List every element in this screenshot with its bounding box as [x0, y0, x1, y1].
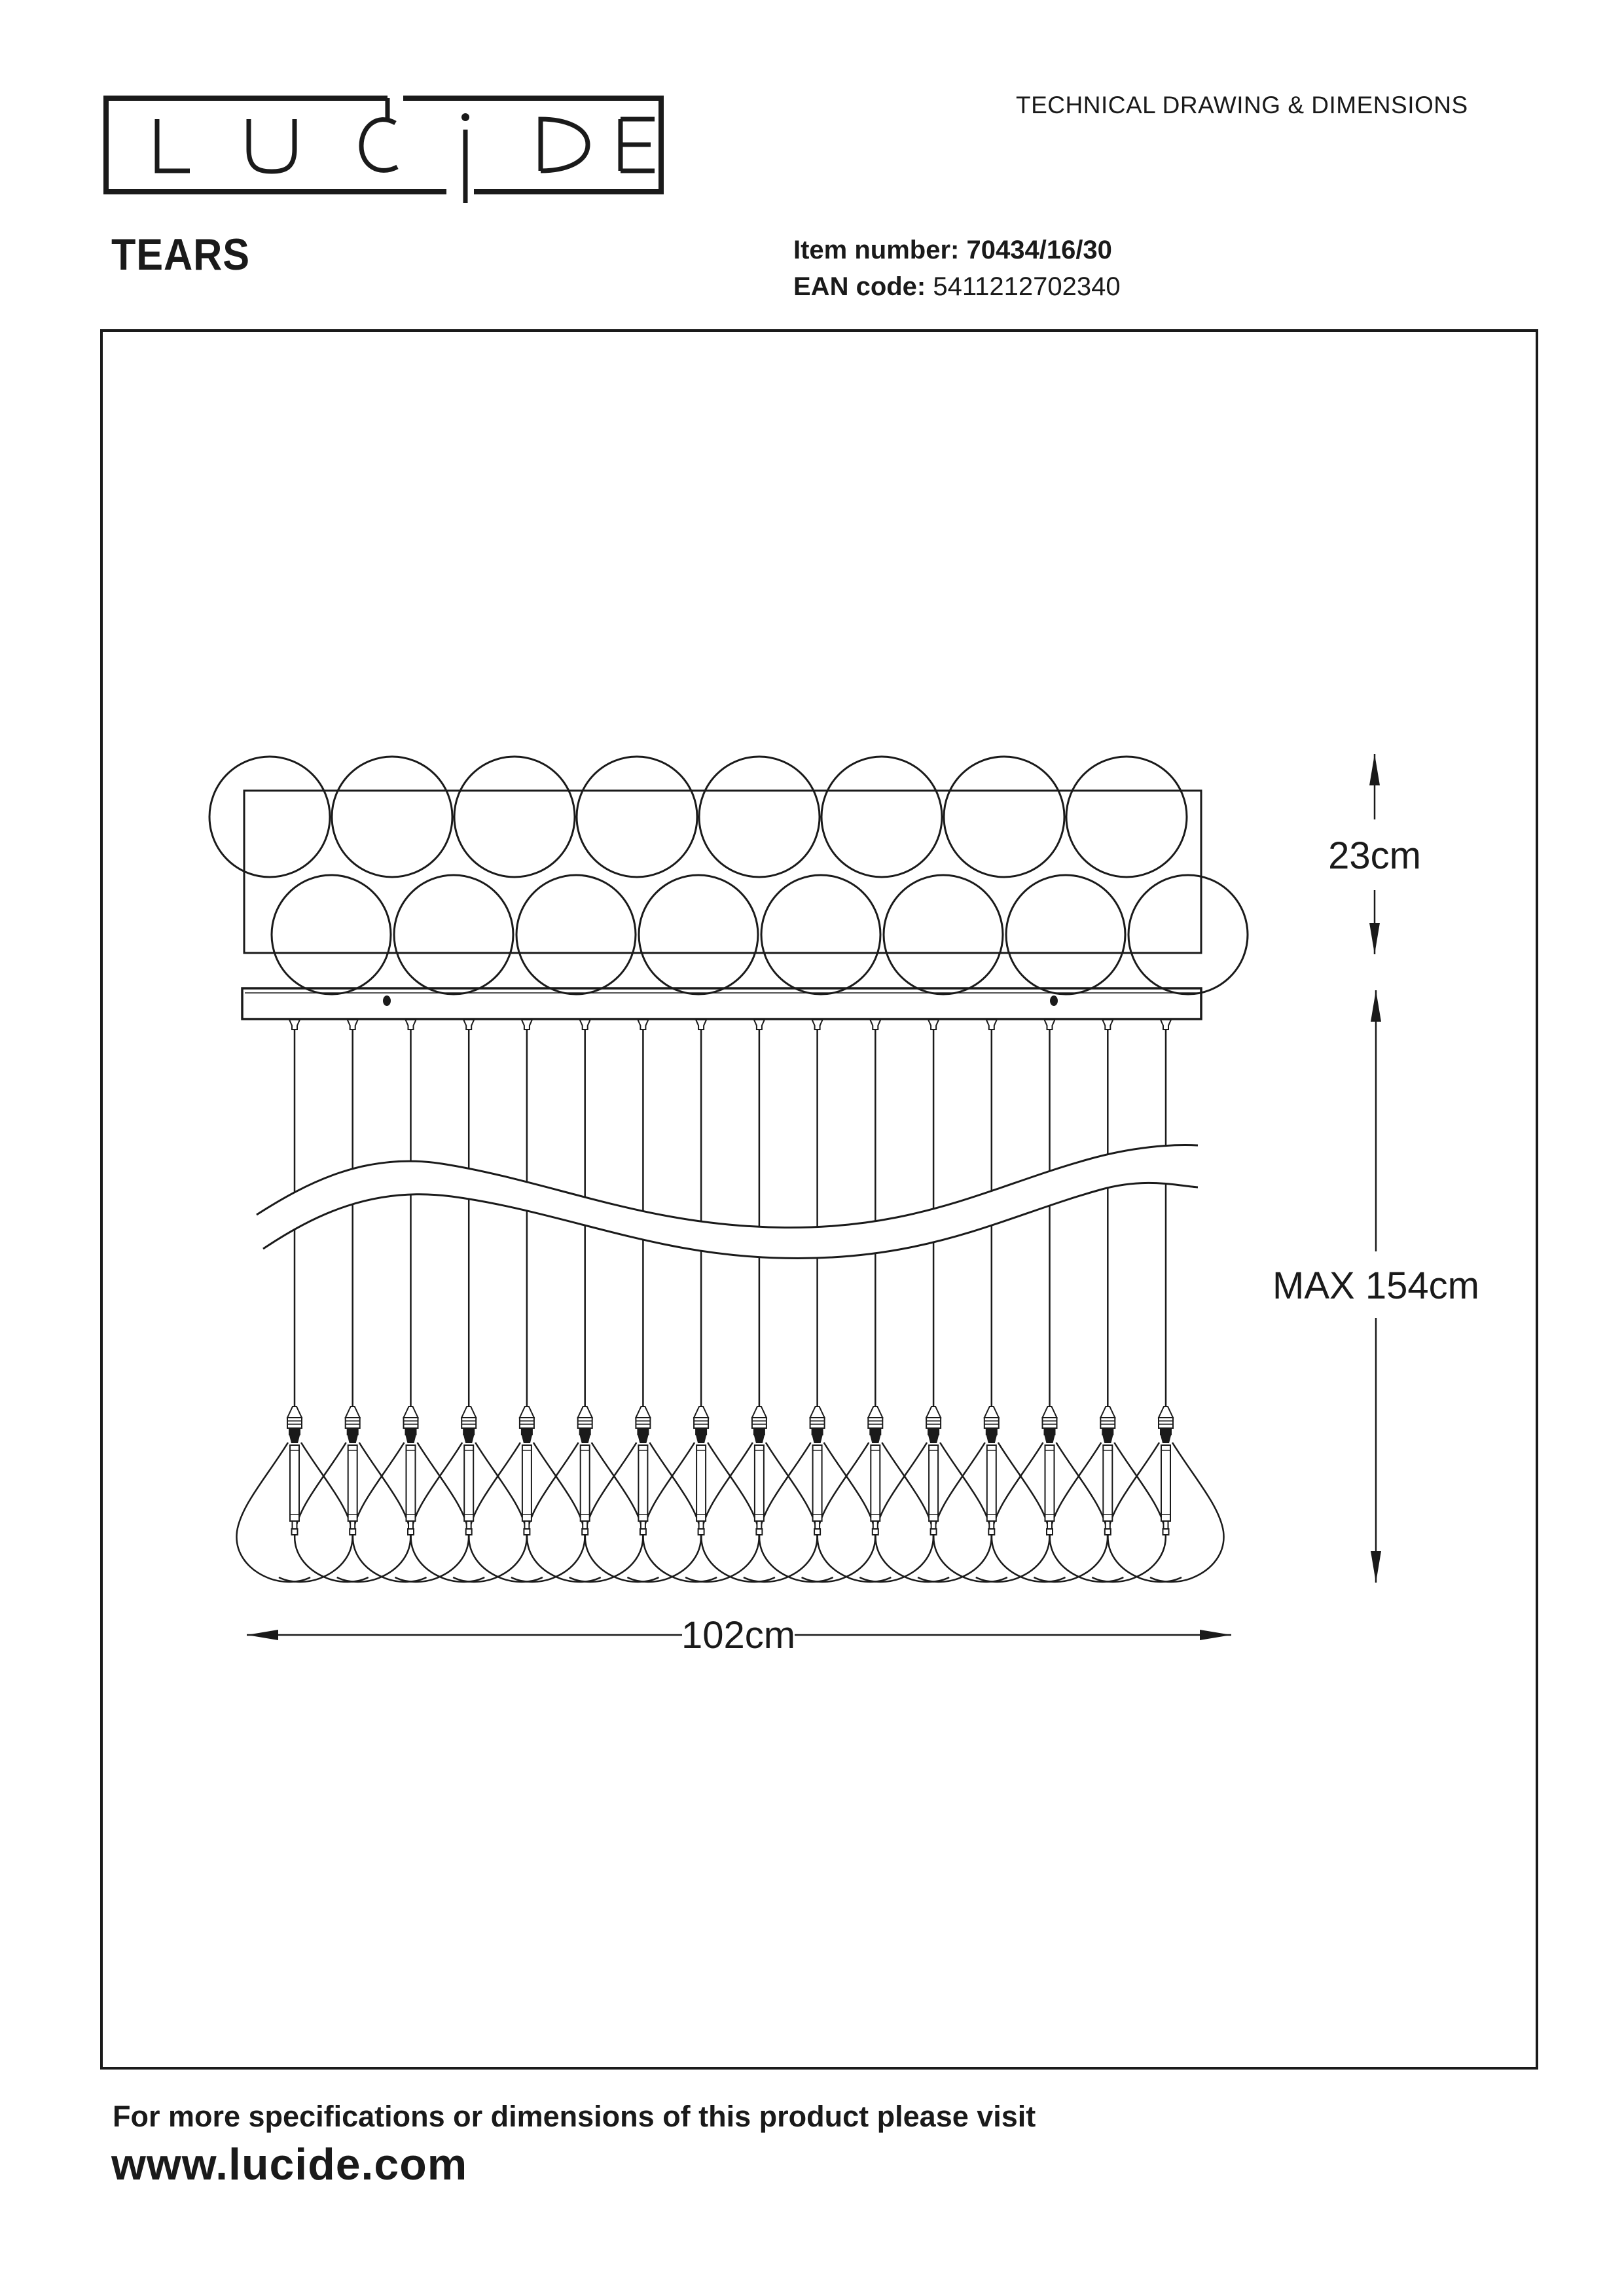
glass-circle [699, 757, 820, 877]
dimension-depth: 23cm [1328, 754, 1421, 954]
wire [348, 1020, 358, 1407]
top-view-plate [244, 791, 1201, 953]
length-break-wave [257, 1145, 1198, 1259]
socket-and-tube [984, 1407, 999, 1535]
glass-circle [209, 757, 330, 877]
glass-circles-top-row [209, 757, 1187, 877]
socket-and-tube [461, 1407, 476, 1535]
socket-and-tube [404, 1407, 418, 1535]
wire [406, 1020, 416, 1407]
glass-circle [1066, 757, 1187, 877]
socket-and-tube [1043, 1407, 1057, 1535]
dimension-depth-label: 23cm [1328, 834, 1421, 877]
glass-circle [577, 757, 697, 877]
socket-and-tube [1100, 1407, 1115, 1535]
glass-circle [1006, 875, 1125, 994]
wire [696, 1020, 706, 1407]
top-view [209, 757, 1248, 994]
wire [812, 1020, 823, 1407]
arrow-right-icon [1200, 1630, 1231, 1640]
socket-and-tube [346, 1407, 360, 1535]
footer-website: www.lucide.com [111, 2139, 467, 2190]
mounting-hole-right [1050, 996, 1058, 1006]
socket-and-tube [926, 1407, 941, 1535]
dimension-max-height: MAX 154cm [1272, 990, 1479, 1583]
drawing-canvas: 23cm MAX 154cm 102cm [0, 0, 1624, 2296]
socket-and-tube [752, 1407, 767, 1535]
arrow-down-icon [1371, 1551, 1381, 1583]
glass-circle [1128, 875, 1248, 994]
glass-circle [821, 757, 942, 877]
glass-circle [639, 875, 758, 994]
wire [463, 1020, 474, 1407]
suspension-wires [289, 1020, 1171, 1407]
socket-and-tube [868, 1407, 882, 1535]
glass-circle [761, 875, 880, 994]
socket-and-tube [1159, 1407, 1173, 1535]
dimension-width-label: 102cm [681, 1614, 795, 1657]
arrow-down-icon [1369, 923, 1380, 954]
mounting-hole-left [383, 996, 391, 1006]
socket-and-tube [578, 1407, 592, 1535]
side-view [236, 988, 1223, 1582]
glass-circle [944, 757, 1064, 877]
glass-circles-bottom-row [272, 875, 1248, 994]
wire [754, 1020, 765, 1407]
glass-circle [394, 875, 513, 994]
sockets-and-tubes [287, 1407, 1173, 1535]
wire [522, 1020, 532, 1407]
socket-and-tube [287, 1407, 302, 1535]
glass-circle [884, 875, 1003, 994]
wire [1045, 1020, 1055, 1407]
wire [1161, 1020, 1171, 1407]
glass-circle [272, 875, 391, 994]
socket-and-tube [520, 1407, 534, 1535]
arrow-left-icon [247, 1630, 278, 1640]
wire [870, 1020, 880, 1407]
socket-and-tube [636, 1407, 650, 1535]
teardrop-glasses [236, 1443, 1223, 1582]
glass-circle [332, 757, 452, 877]
arrow-up-icon [1371, 990, 1381, 1022]
socket-and-tube [694, 1407, 708, 1535]
wire [1102, 1020, 1113, 1407]
technical-drawing-page: LUCIDE TECHNICAL DRAWING & DIMENSIONS TE… [0, 0, 1624, 2296]
footer-note: For more specifications or dimensions of… [113, 2100, 1036, 2134]
glass-circle [454, 757, 575, 877]
dimension-max-height-label: MAX 154cm [1272, 1265, 1479, 1307]
socket-and-tube [810, 1407, 825, 1535]
glass-circle [516, 875, 636, 994]
dimension-width: 102cm [247, 1614, 1231, 1657]
arrow-up-icon [1369, 754, 1380, 785]
